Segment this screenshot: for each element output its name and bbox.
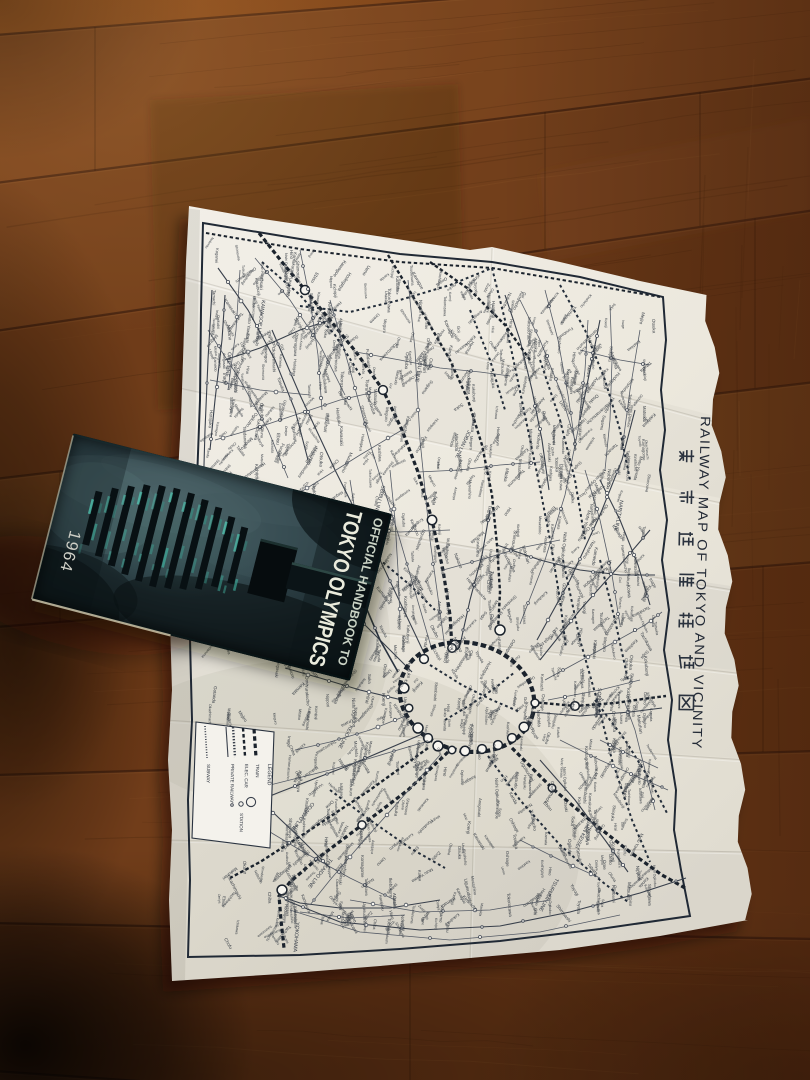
svg-text:Koganei: Koganei: [214, 248, 220, 263]
svg-text:Chiba: Chiba: [267, 892, 272, 904]
svg-text:Koenji: Koenji: [456, 698, 462, 710]
svg-text:Ebisu: Ebisu: [275, 433, 281, 445]
svg-text:Otsuka: Otsuka: [457, 846, 462, 860]
svg-text:Kichijoji: Kichijoji: [576, 797, 582, 812]
svg-text:Goi: Goi: [618, 577, 622, 583]
svg-text:Koiwa: Koiwa: [556, 727, 561, 739]
svg-text:Ueno: Ueno: [287, 862, 291, 870]
svg-text:Okubo: Okubo: [251, 296, 257, 308]
svg-text:Zushi: Zushi: [245, 333, 251, 343]
svg-text:Inage: Inage: [624, 670, 629, 681]
svg-text:Machida: Machida: [393, 645, 398, 660]
svg-text:Koiwa: Koiwa: [626, 585, 632, 598]
svg-text:Osaki: Osaki: [392, 896, 398, 908]
svg-text:Koenji: Koenji: [437, 524, 442, 535]
svg-text:Inage: Inage: [286, 736, 292, 748]
svg-text:Tsudanuma: Tsudanuma: [212, 318, 216, 335]
svg-text:ELEC. CAR: ELEC. CAR: [244, 764, 249, 789]
svg-text:Chofu: Chofu: [512, 559, 516, 568]
svg-text:Koiwa: Koiwa: [417, 870, 423, 882]
svg-text:Kunitachi: Kunitachi: [539, 674, 545, 691]
svg-text:Oshiage: Oshiage: [505, 851, 510, 867]
svg-text:Matsudo: Matsudo: [500, 359, 506, 374]
svg-text:Koenji: Koenji: [254, 398, 260, 410]
svg-text:Machida: Machida: [361, 361, 365, 374]
svg-text:Soga: Soga: [494, 684, 500, 695]
svg-text:Ogikubo: Ogikubo: [401, 513, 406, 527]
svg-text:Komagome: Komagome: [360, 855, 365, 878]
svg-text:Nippori: Nippori: [325, 694, 331, 708]
svg-text:Hino: Hino: [318, 382, 322, 390]
svg-text:Kichijoji: Kichijoji: [627, 746, 631, 758]
svg-text:Toyoda: Toyoda: [573, 438, 578, 452]
svg-text:Otsuka: Otsuka: [318, 452, 324, 467]
svg-text:Funabashi: Funabashi: [617, 692, 621, 709]
svg-text:Koganei: Koganei: [313, 754, 319, 769]
svg-text:Goi: Goi: [456, 326, 462, 333]
svg-text:Ogikubo: Ogikubo: [460, 770, 464, 783]
svg-text:SUBWAY: SUBWAY: [206, 764, 211, 783]
svg-text:Kamata: Kamata: [270, 440, 274, 454]
svg-text:Harajuku: Harajuku: [406, 661, 412, 679]
svg-text:Kichijoji: Kichijoji: [254, 464, 260, 480]
svg-text:Hirai: Hirai: [446, 704, 451, 713]
svg-text:Narashino: Narashino: [592, 495, 598, 515]
svg-text:Hodogaya: Hodogaya: [496, 427, 501, 446]
svg-text:Ofuna: Ofuna: [631, 705, 637, 718]
svg-text:Musashino: Musashino: [528, 429, 534, 452]
svg-text:Soga: Soga: [600, 899, 605, 908]
svg-text:Omiya: Omiya: [284, 426, 288, 436]
svg-text:Matsudo: Matsudo: [642, 406, 647, 423]
svg-text:Kawasaki: Kawasaki: [339, 426, 344, 446]
svg-text:Kunitachi: Kunitachi: [636, 570, 640, 586]
svg-text:Goi: Goi: [388, 383, 393, 389]
svg-text:Hirai: Hirai: [613, 823, 619, 832]
svg-text:TRAIN: TRAIN: [255, 764, 260, 778]
svg-text:Koshigaya: Koshigaya: [433, 546, 438, 563]
svg-text:Otsuka: Otsuka: [372, 367, 376, 378]
svg-text:Ikebukuro: Ikebukuro: [349, 779, 354, 796]
svg-text:Inage: Inage: [621, 320, 625, 329]
svg-text:Urawa: Urawa: [619, 713, 623, 725]
svg-text:Kamata: Kamata: [395, 276, 400, 292]
svg-text:Shimousa: Shimousa: [261, 364, 265, 380]
svg-text:Anegasaki: Anegasaki: [547, 443, 552, 462]
svg-text:Koiwa: Koiwa: [527, 352, 532, 364]
svg-text:Funabashi: Funabashi: [611, 885, 616, 903]
svg-text:Kokubunji: Kokubunji: [471, 384, 477, 402]
svg-text:Ueno: Ueno: [303, 864, 307, 872]
svg-text:Shin Koiwa: Shin Koiwa: [260, 263, 264, 282]
svg-text:Hino: Hino: [445, 589, 451, 599]
svg-text:Mejiro: Mejiro: [600, 855, 604, 865]
svg-text:Koenji: Koenji: [381, 693, 386, 706]
svg-text:Kashiwa: Kashiwa: [548, 466, 554, 482]
svg-text:Kameido: Kameido: [573, 681, 578, 698]
svg-text:Kichijoji: Kichijoji: [516, 524, 520, 537]
svg-text:Kunitachi: Kunitachi: [565, 369, 571, 387]
svg-text:Tsurumi: Tsurumi: [395, 761, 401, 776]
svg-text:Tokorozawa: Tokorozawa: [522, 604, 526, 625]
svg-text:Koenji: Koenji: [448, 292, 452, 302]
svg-text:Kamata: Kamata: [497, 639, 503, 654]
svg-text:Soka: Soka: [420, 489, 424, 499]
svg-text:Otsuka: Otsuka: [436, 457, 441, 468]
svg-text:Sugamo: Sugamo: [532, 357, 536, 370]
svg-text:Kawagoe: Kawagoe: [264, 345, 269, 364]
svg-text:Nippori: Nippori: [418, 300, 424, 315]
svg-text:Otsuka: Otsuka: [651, 319, 657, 334]
svg-text:Chofu: Chofu: [622, 845, 628, 856]
svg-text:Soka: Soka: [546, 516, 551, 527]
svg-text:Soga: Soga: [304, 441, 309, 451]
svg-text:Mitaka: Mitaka: [612, 719, 618, 733]
svg-text:Noborito: Noborito: [401, 635, 406, 650]
svg-text:Koenji: Koenji: [604, 318, 608, 328]
svg-text:Hirai: Hirai: [323, 837, 329, 847]
svg-text:Koiwa: Koiwa: [642, 776, 647, 785]
svg-text:Sugamo: Sugamo: [397, 615, 401, 629]
svg-text:Tamachi: Tamachi: [307, 384, 311, 398]
svg-text:Harajuku: Harajuku: [522, 775, 526, 790]
svg-text:STATION: STATION: [239, 813, 244, 832]
svg-text:Hirai: Hirai: [490, 326, 494, 333]
svg-text:Ogikubo: Ogikubo: [567, 839, 573, 857]
svg-text:Hirai: Hirai: [351, 365, 356, 374]
svg-text:Tokorozawa: Tokorozawa: [387, 288, 392, 313]
svg-text:Kanda: Kanda: [436, 333, 441, 345]
svg-text:Yoyogi: Yoyogi: [582, 601, 587, 614]
svg-text:Koshigaya: Koshigaya: [540, 860, 545, 879]
svg-text:Meguro: Meguro: [382, 319, 388, 334]
svg-text:Soka: Soka: [367, 674, 372, 684]
svg-text:Machida: Machida: [536, 710, 542, 728]
svg-text:Soga: Soga: [592, 643, 598, 654]
svg-text:Kichijoji: Kichijoji: [434, 918, 438, 930]
svg-text:Ofuna: Ofuna: [391, 515, 395, 526]
svg-text:Hino: Hino: [442, 767, 448, 777]
svg-text:Makuhari: Makuhari: [488, 444, 493, 458]
svg-text:Kameido: Kameido: [213, 357, 218, 372]
svg-text:Hirai: Hirai: [508, 319, 514, 328]
svg-text:Toyoda: Toyoda: [576, 900, 582, 915]
svg-text:Harajuku: Harajuku: [298, 423, 302, 437]
svg-text:Shin Koiwa: Shin Koiwa: [559, 471, 564, 491]
svg-text:Kichijoji: Kichijoji: [314, 706, 319, 720]
svg-text:Ome: Ome: [485, 362, 490, 370]
svg-text:Ichikawa: Ichikawa: [506, 330, 510, 343]
svg-text:Kawagoe: Kawagoe: [591, 609, 595, 624]
svg-text:Goi: Goi: [523, 697, 528, 704]
svg-text:Ogikubo: Ogikubo: [591, 356, 595, 369]
svg-text:Kamata: Kamata: [544, 832, 548, 846]
svg-text:Omiya: Omiya: [217, 894, 222, 904]
svg-text:Tamachi: Tamachi: [211, 290, 217, 305]
svg-text:Kashiwa: Kashiwa: [550, 524, 556, 540]
svg-text:Hino: Hino: [287, 288, 292, 297]
svg-text:Otsuka: Otsuka: [628, 655, 634, 670]
svg-text:Anegasaki: Anegasaki: [650, 777, 654, 794]
svg-text:Otsuka: Otsuka: [382, 664, 388, 678]
svg-text:Hino: Hino: [548, 867, 553, 876]
svg-text:Kashiwa: Kashiwa: [505, 722, 510, 737]
svg-text:Komagome: Komagome: [584, 746, 589, 770]
svg-text:Okachimachi: Okachimachi: [271, 347, 277, 373]
svg-text:Okubo: Okubo: [242, 861, 248, 875]
svg-text:Musashino: Musashino: [538, 516, 542, 534]
svg-text:Okachimachi: Okachimachi: [208, 704, 212, 725]
svg-text:Kashiwa: Kashiwa: [377, 445, 383, 462]
svg-text:PRIVATE RAILWAY: PRIVATE RAILWAY: [229, 764, 235, 803]
svg-text:Ichikawa: Ichikawa: [638, 788, 644, 805]
svg-text:Tokorozawa: Tokorozawa: [587, 677, 591, 698]
svg-text:Hirai: Hirai: [622, 532, 626, 539]
svg-text:CHIBA: CHIBA: [635, 760, 642, 777]
svg-text:Kameido: Kameido: [561, 438, 566, 455]
svg-text:Hino: Hino: [537, 340, 541, 347]
svg-text:LEGEND: LEGEND: [266, 764, 272, 786]
svg-text:Kokubunji: Kokubunji: [610, 842, 616, 862]
svg-text:Chofu: Chofu: [509, 657, 514, 667]
svg-text:Koshigaya: Koshigaya: [403, 596, 408, 618]
svg-text:Kashiwa: Kashiwa: [450, 363, 455, 379]
svg-text:Soka: Soka: [351, 493, 355, 501]
svg-text:Hino: Hino: [477, 751, 482, 760]
svg-text:Tokorozawa: Tokorozawa: [443, 296, 447, 317]
svg-text:Nishi Ogikubo: Nishi Ogikubo: [284, 253, 288, 275]
svg-text:Kamakura: Kamakura: [587, 793, 593, 812]
svg-text:Matsudo: Matsudo: [526, 317, 532, 335]
